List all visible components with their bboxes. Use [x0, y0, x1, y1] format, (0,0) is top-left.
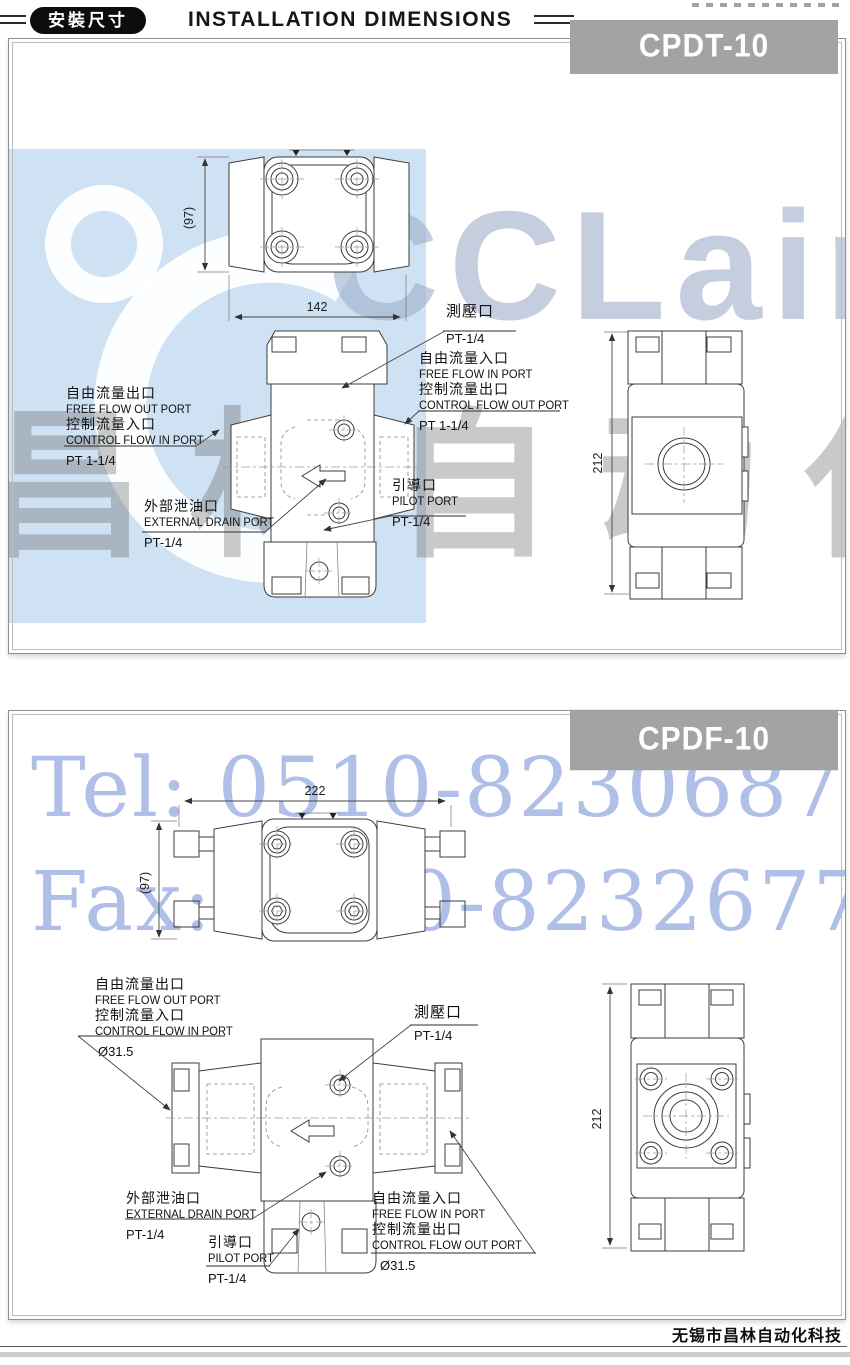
- port-label-free-in-p1: 自由流量入口 FREE FLOW IN PORT 控制流量出口 CONTROL …: [419, 350, 580, 433]
- label-line-en: EXTERNAL DRAIN PORT: [144, 515, 274, 529]
- label-line-en: FREE FLOW IN PORT: [419, 367, 569, 381]
- label-line-cn: 測壓口: [446, 303, 494, 320]
- label-line-cn: 控制流量入口: [66, 416, 214, 433]
- header-rule-left: [0, 15, 26, 24]
- label-line-cn: 自由流量入口: [419, 350, 580, 367]
- label-line-size: PT-1/4: [392, 514, 463, 529]
- label-line-cn: 外部泄油口: [126, 1190, 266, 1207]
- clipped-text-fragment: [692, 3, 842, 7]
- label-line-size: PT-1/4: [208, 1271, 279, 1286]
- label-line-cn: 測壓口: [414, 1004, 462, 1021]
- port-label-free-in-p2: 自由流量入口 FREE FLOW IN PORT 控制流量出口 CONTROL …: [372, 1190, 533, 1273]
- footer-rule: [0, 1346, 847, 1347]
- label-line-en: EXTERNAL DRAIN PORT: [126, 1207, 256, 1221]
- cpdt10-side-view: 212: [587, 311, 772, 611]
- dim-height-label: 212: [590, 1109, 604, 1130]
- label-line-cn: 控制流量出口: [372, 1221, 533, 1238]
- label-line-cn: 引導口: [392, 477, 463, 494]
- label-line-size: PT-1/4: [144, 535, 284, 550]
- label-line-cn: 自由流量出口: [95, 976, 243, 993]
- label-line-cn: 自由流量入口: [372, 1190, 533, 1207]
- port-label-test-p1: 測壓口 PT-1/4: [446, 303, 494, 346]
- port-label-pilot-p1: 引導口 PILOT PORT PT-1/4: [392, 477, 463, 529]
- label-line-en: FREE FLOW OUT PORT: [95, 993, 233, 1007]
- label-line-en: CONTROL FLOW IN PORT: [66, 433, 204, 447]
- port-label-pilot-p2: 引導口 PILOT PORT PT-1/4: [208, 1234, 279, 1286]
- page-title: INSTALLATION DIMENSIONS: [188, 8, 512, 32]
- dim-width-label: 142: [307, 300, 328, 314]
- footer-company-name: 无锡市昌林自动化科技: [672, 1322, 842, 1346]
- footer-bar: [0, 1352, 850, 1357]
- port-label-drain-p1: 外部泄油口 EXTERNAL DRAIN PORT PT-1/4: [144, 498, 284, 550]
- label-line-cn: 控制流量入口: [95, 1007, 243, 1024]
- label-line-en: CONTROL FLOW IN PORT: [95, 1024, 233, 1038]
- port-label-test-p2: 測壓口 PT-1/4: [414, 1004, 462, 1043]
- port-label-free-out-p2: 自由流量出口 FREE FLOW OUT PORT 控制流量入口 CONTROL…: [95, 976, 243, 1059]
- label-line-en: CONTROL FLOW OUT PORT: [419, 398, 569, 412]
- port-label-free-out-p1: 自由流量出口 FREE FLOW OUT PORT 控制流量入口 CONTROL…: [66, 385, 214, 468]
- dim-height-label: 212: [591, 453, 605, 474]
- label-line-cn: 控制流量出口: [419, 381, 580, 398]
- cpdf10-top-view: 222 (97): [137, 773, 477, 968]
- label-line-cn: 外部泄油口: [144, 498, 284, 515]
- label-line-size: Ø31.5: [380, 1258, 533, 1273]
- label-line-cn: 引導口: [208, 1234, 279, 1251]
- dim-height-label: (97): [138, 872, 152, 894]
- label-line-size: PT 1-1/4: [66, 453, 214, 468]
- label-line-size: Ø31.5: [98, 1044, 243, 1059]
- label-line-size: PT-1/4: [446, 331, 494, 346]
- dim-height-label: (97): [182, 207, 196, 229]
- label-line-en: CONTROL FLOW OUT PORT: [372, 1238, 522, 1252]
- label-line-size: PT 1-1/4: [419, 418, 580, 433]
- model-banner-cpdt10: CPDT-10: [570, 20, 838, 74]
- header-rule-right: [534, 15, 574, 24]
- label-line-en: FREE FLOW IN PORT: [372, 1207, 522, 1221]
- label-line-size: PT-1/4: [414, 1028, 462, 1043]
- catalog-page: 安裝尺寸 INSTALLATION DIMENSIONS CCLair 昌林自动…: [0, 0, 850, 1365]
- label-line-en: FREE FLOW OUT PORT: [66, 402, 204, 416]
- section-badge: 安裝尺寸: [30, 7, 146, 34]
- dim-width-label: 222: [305, 784, 326, 798]
- label-line-en: PILOT PORT: [392, 494, 458, 508]
- panel-cpdt10: CCLair 昌林自动化 (97) 142: [8, 38, 846, 654]
- cpdf10-side-view: 212: [597, 974, 782, 1274]
- label-line-en: PILOT PORT: [208, 1251, 274, 1265]
- model-banner-cpdf10: CPDF-10: [570, 710, 838, 770]
- label-line-cn: 自由流量出口: [66, 385, 214, 402]
